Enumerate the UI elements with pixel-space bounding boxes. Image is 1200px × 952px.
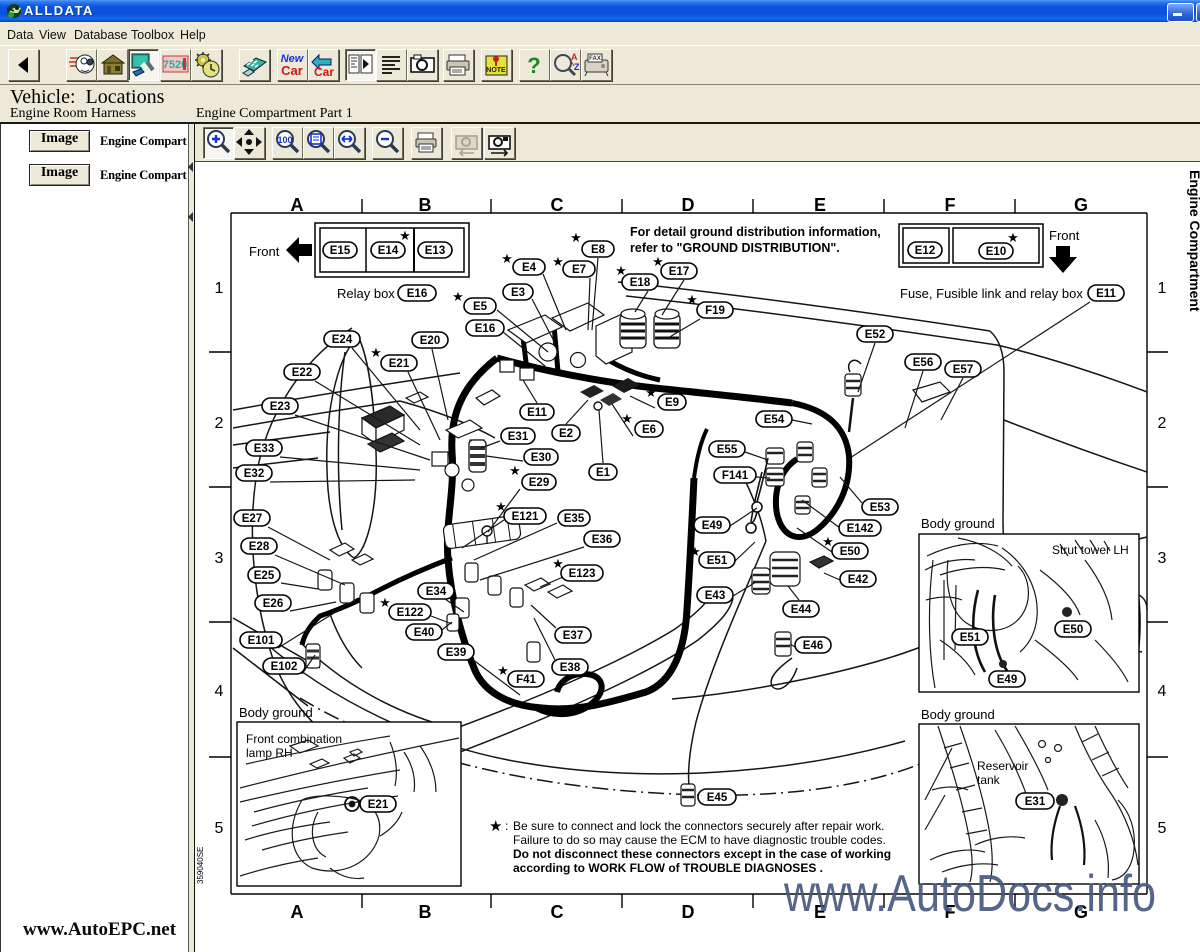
svg-text:1: 1: [1158, 280, 1167, 297]
svg-text:E29: E29: [529, 477, 549, 489]
svg-text:E12: E12: [915, 245, 935, 257]
svg-text:E21: E21: [389, 358, 410, 370]
svg-text:E36: E36: [592, 534, 612, 546]
svg-text:E37: E37: [563, 630, 583, 642]
svg-text:★: ★: [501, 251, 513, 266]
svg-text:E26: E26: [263, 598, 283, 610]
svg-text:Front: Front: [1049, 228, 1080, 243]
svg-text:www.AutoDocs.info: www.AutoDocs.info: [783, 865, 1156, 923]
svg-text:E32: E32: [244, 468, 264, 480]
svg-text:Fuse, Fusible link and rel: Fuse, Fusible link and relay box: [900, 286, 1083, 301]
svg-text:★: ★: [645, 385, 657, 400]
svg-text:G: G: [1074, 195, 1088, 215]
svg-text:E20: E20: [420, 335, 440, 347]
svg-text:Front: Front: [249, 244, 280, 259]
svg-text:E9: E9: [665, 397, 679, 409]
svg-text:E31: E31: [1025, 796, 1046, 808]
svg-text:★: ★: [399, 228, 411, 243]
svg-text:E18: E18: [630, 277, 651, 289]
svg-text:E28: E28: [249, 541, 270, 553]
svg-text:E101: E101: [248, 635, 275, 647]
svg-text:★: ★: [652, 254, 664, 269]
svg-text:E31: E31: [508, 431, 529, 443]
svg-text:3: 3: [215, 550, 224, 567]
svg-text:For detail ground distribution: For detail ground distribution informati…: [630, 225, 881, 239]
svg-text:E55: E55: [717, 444, 738, 456]
svg-text:2: 2: [215, 415, 224, 432]
svg-text:E44: E44: [791, 604, 812, 616]
svg-text:★: ★: [570, 230, 582, 245]
svg-text:E13: E13: [425, 245, 445, 257]
svg-text:★: ★: [1007, 230, 1019, 245]
svg-text:Engine Compartment: Engine Compartment: [1187, 170, 1200, 312]
svg-text:★: ★: [379, 595, 391, 610]
svg-text:E25: E25: [254, 570, 275, 582]
svg-text:E21: E21: [368, 799, 389, 811]
svg-text:E2: E2: [559, 428, 573, 440]
svg-text:E: E: [814, 195, 826, 215]
svg-text:Be sure to connect and lock th: Be sure to connect and lock the connecto…: [513, 819, 885, 833]
svg-text:E17: E17: [669, 266, 689, 278]
svg-text:E1: E1: [596, 467, 611, 479]
svg-text:E3: E3: [511, 287, 525, 299]
svg-text:E51: E51: [707, 555, 728, 567]
svg-text:★: ★: [495, 499, 507, 514]
svg-text:E4: E4: [522, 262, 537, 274]
svg-text:E57: E57: [953, 364, 973, 376]
svg-text:2: 2: [1158, 415, 1167, 432]
svg-text:359040SE: 359040SE: [196, 847, 205, 884]
svg-text:E49: E49: [997, 674, 1017, 686]
svg-text:D: D: [682, 195, 695, 215]
svg-text:E45: E45: [707, 792, 728, 804]
svg-text:E46: E46: [803, 640, 823, 652]
svg-text:E43: E43: [705, 590, 725, 602]
svg-text:★: ★: [689, 544, 701, 559]
svg-text:E14: E14: [378, 245, 399, 257]
svg-text:E52: E52: [865, 329, 885, 341]
svg-text:E5: E5: [473, 301, 488, 313]
svg-text:F19: F19: [705, 305, 725, 317]
svg-text:E102: E102: [271, 661, 298, 673]
svg-text:F: F: [945, 195, 956, 215]
svg-text:E40: E40: [414, 627, 434, 639]
svg-text:E50: E50: [1063, 624, 1083, 636]
svg-text:Relay box: Relay box: [337, 286, 395, 301]
svg-text:lamp RH: lamp RH: [246, 746, 293, 760]
svg-text:Front combination: Front combination: [246, 732, 342, 746]
svg-text:★: ★: [686, 292, 698, 307]
svg-text:C: C: [551, 902, 564, 922]
svg-text:C: C: [551, 195, 564, 215]
svg-text:E7: E7: [572, 264, 586, 276]
svg-text:E27: E27: [242, 513, 262, 525]
svg-text:Body ground: Body ground: [921, 516, 995, 531]
svg-text:E30: E30: [531, 452, 551, 464]
svg-text:★: ★: [370, 345, 382, 360]
svg-text:E8: E8: [591, 244, 606, 256]
svg-text:E11: E11: [1096, 288, 1116, 300]
svg-text:E123: E123: [569, 568, 596, 580]
svg-text:E42: E42: [848, 574, 868, 586]
svg-text:E53: E53: [870, 502, 890, 514]
svg-text:tank: tank: [977, 773, 1001, 787]
svg-text:E51: E51: [960, 632, 981, 644]
svg-text:E54: E54: [764, 414, 785, 426]
svg-text:E23: E23: [270, 401, 290, 413]
svg-text:E122: E122: [397, 607, 424, 619]
svg-text:Body ground: Body ground: [921, 707, 995, 722]
svg-text:E39: E39: [446, 647, 466, 659]
svg-text:4: 4: [215, 683, 224, 700]
svg-text:★: ★: [509, 463, 521, 478]
svg-text:E34: E34: [426, 586, 447, 598]
svg-text:B: B: [419, 195, 432, 215]
svg-text:★: ★: [552, 556, 564, 571]
svg-text:E16: E16: [407, 288, 427, 300]
svg-text:E10: E10: [986, 246, 1006, 258]
svg-text:F141: F141: [722, 470, 749, 482]
svg-text:E15: E15: [330, 245, 351, 257]
svg-text:E142: E142: [847, 523, 874, 535]
svg-text:★: ★: [822, 534, 834, 549]
svg-text:D: D: [682, 902, 695, 922]
svg-text:refer to "GROUND DISTRIBUTION": refer to "GROUND DISTRIBUTION".: [630, 241, 840, 255]
svg-text:5: 5: [215, 820, 224, 837]
svg-text:according to WORK FLOW of TROU: according to WORK FLOW of TROUBLE DIAGNO…: [513, 861, 823, 875]
svg-text:5: 5: [1158, 820, 1167, 837]
svg-text:E11: E11: [527, 407, 547, 419]
svg-text:3: 3: [1158, 550, 1167, 567]
svg-text:Reservoir: Reservoir: [977, 759, 1028, 773]
svg-text:E121: E121: [512, 511, 539, 523]
svg-text:E35: E35: [564, 513, 585, 525]
svg-text:E22: E22: [292, 367, 312, 379]
svg-text:★: ★: [452, 289, 464, 304]
svg-text:★: ★: [497, 663, 509, 678]
svg-text:A: A: [291, 195, 304, 215]
svg-text:★: ★: [615, 263, 627, 278]
svg-text:Do not disconnect these connec: Do not disconnect these connectors excep…: [513, 847, 891, 861]
svg-text:1: 1: [215, 280, 224, 297]
svg-text:4: 4: [1158, 683, 1167, 700]
svg-text:E16: E16: [475, 323, 495, 335]
svg-text:E49: E49: [702, 520, 722, 532]
svg-text:E56: E56: [913, 357, 933, 369]
svg-text::: :: [505, 819, 508, 833]
svg-text:E50: E50: [840, 546, 860, 558]
svg-text:E38: E38: [560, 662, 581, 674]
svg-text:E33: E33: [254, 443, 274, 455]
svg-text:E24: E24: [332, 334, 353, 346]
svg-text:E6: E6: [642, 424, 656, 436]
svg-text:A: A: [291, 902, 304, 922]
svg-text:★: ★: [621, 411, 633, 426]
svg-text:★: ★: [489, 818, 502, 835]
svg-text:F41: F41: [516, 674, 536, 686]
svg-text:Body ground: Body ground: [239, 705, 313, 720]
svg-text:Failure to do so may cause the: Failure to do so may cause the ECM to ha…: [513, 833, 886, 847]
svg-text:B: B: [419, 902, 432, 922]
svg-text:★: ★: [552, 254, 564, 269]
